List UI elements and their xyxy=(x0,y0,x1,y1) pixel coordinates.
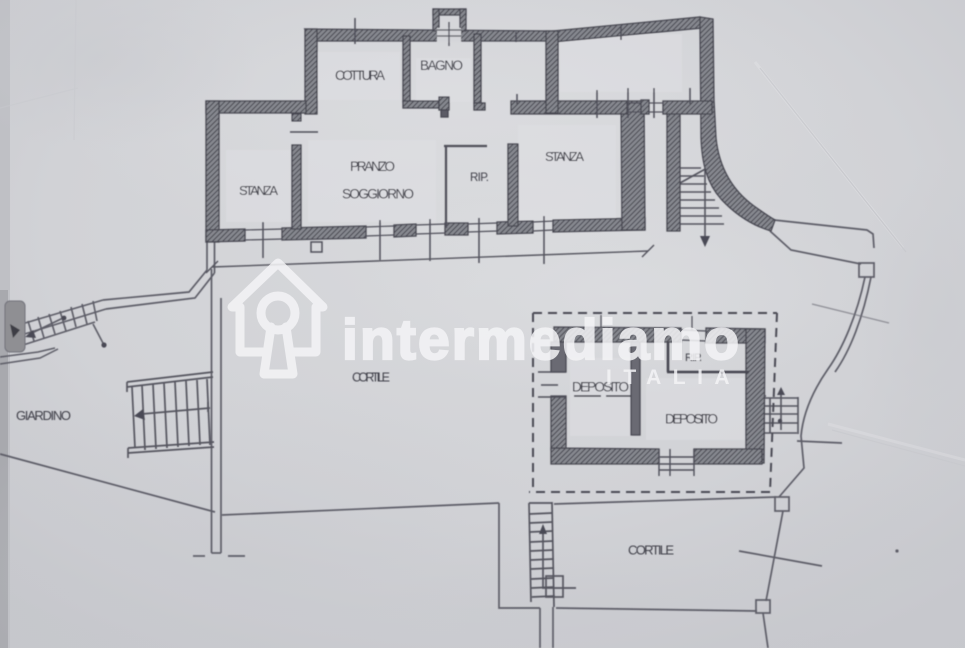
svg-text:ITALIA: ITALIA xyxy=(606,366,741,389)
svg-text:CORTILE: CORTILE xyxy=(628,543,674,558)
svg-text:BAGNO: BAGNO xyxy=(420,58,463,73)
svg-text:RIP.: RIP. xyxy=(470,172,489,184)
svg-text:SOGGIORNO: SOGGIORNO xyxy=(342,187,414,202)
svg-text:intermediamo: intermediamo xyxy=(342,308,740,372)
svg-text:CORTILE: CORTILE xyxy=(352,371,390,385)
svg-text:PRANZO: PRANZO xyxy=(350,159,395,174)
svg-text:STANZA: STANZA xyxy=(239,183,278,198)
svg-text:COTTURA: COTTURA xyxy=(335,68,385,83)
svg-text:STANZA: STANZA xyxy=(545,149,584,164)
svg-text:GIARDINO: GIARDINO xyxy=(16,408,71,423)
svg-text:DEPOSITO: DEPOSITO xyxy=(665,412,718,427)
